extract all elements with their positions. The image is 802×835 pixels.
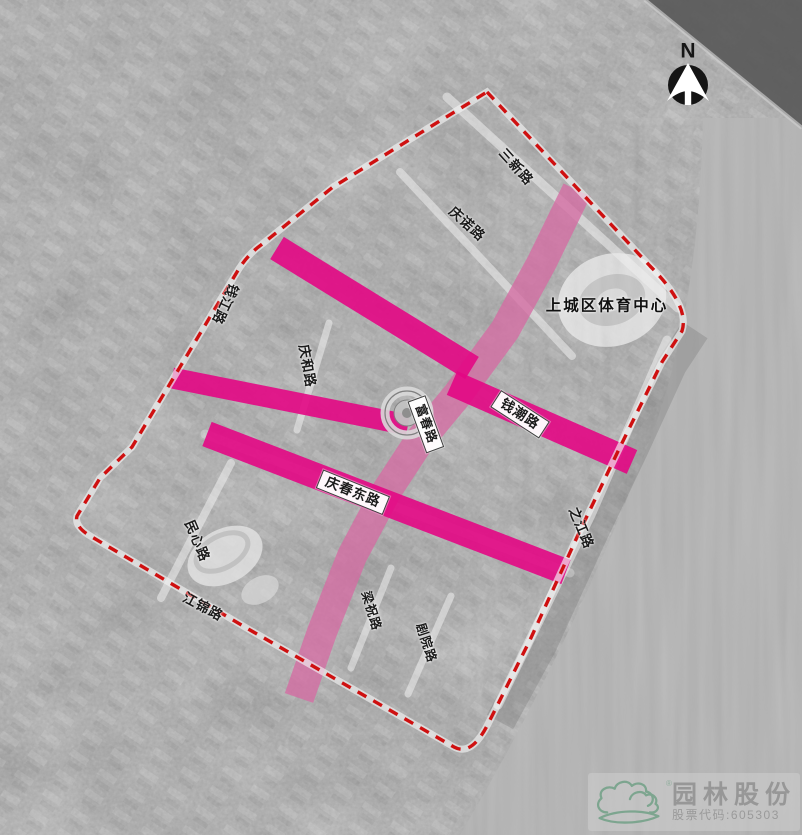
registered-mark: ®	[666, 779, 672, 788]
logo-company-name: 园林股份	[672, 782, 796, 808]
logo-cloud-icon	[592, 777, 666, 827]
logo-stock-code: 股票代码:605303	[672, 808, 796, 822]
aerial-basemap	[0, 0, 802, 835]
company-logo: ® 园林股份 股票代码:605303	[588, 773, 800, 831]
aerial-map-canvas: N 上城区体育中心 三新路 庆诺路 钱江路 庆和路 钱潮路 富春路 庆春东路 民…	[0, 0, 802, 835]
north-label: N	[680, 41, 695, 62]
landmark-label-sports-center: 上城区体育中心	[546, 298, 669, 314]
